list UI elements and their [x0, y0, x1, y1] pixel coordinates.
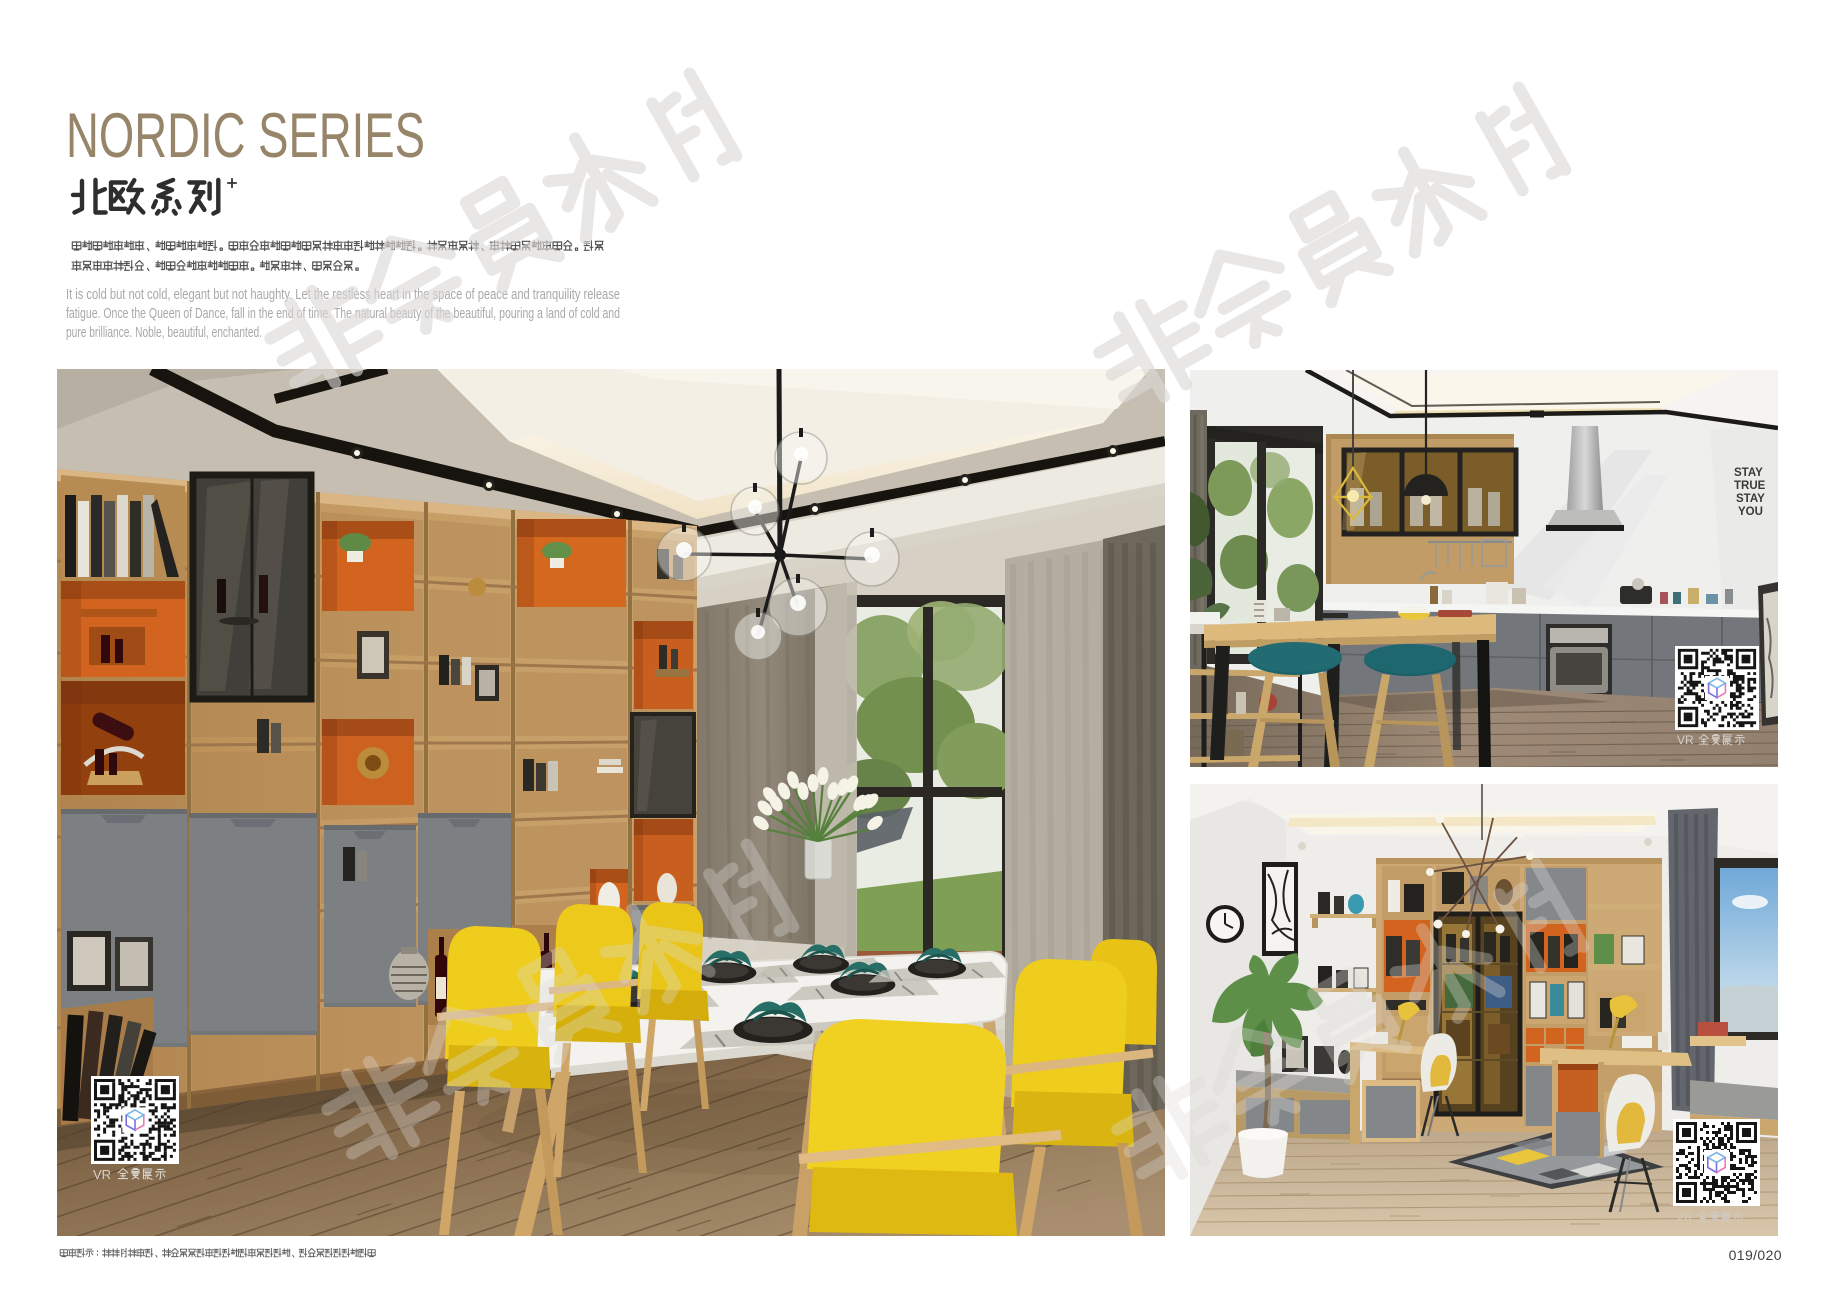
svg-text:pure brilliance. Noble, beauti: pure brilliance. Noble, beautiful, encha…: [66, 325, 262, 341]
svg-text:NORDIC SERIES: NORDIC SERIES: [66, 101, 425, 171]
svg-text:STAY: STAY: [1736, 493, 1765, 505]
svg-text:It is cold but not cold, elega: It is cold but not cold, elegant but not…: [66, 287, 620, 303]
svg-text:STAY: STAY: [1734, 467, 1763, 479]
svg-text:VR: VR: [1677, 733, 1694, 747]
svg-text:VR: VR: [93, 1167, 111, 1182]
svg-text:TRUE: TRUE: [1734, 480, 1766, 492]
svg-text:VR: VR: [1676, 1210, 1693, 1224]
svg-text:fatigue. Once the Queen of Dan: fatigue. Once the Queen of Dance, fall i…: [66, 306, 620, 322]
svg-text:YOU: YOU: [1738, 506, 1763, 518]
